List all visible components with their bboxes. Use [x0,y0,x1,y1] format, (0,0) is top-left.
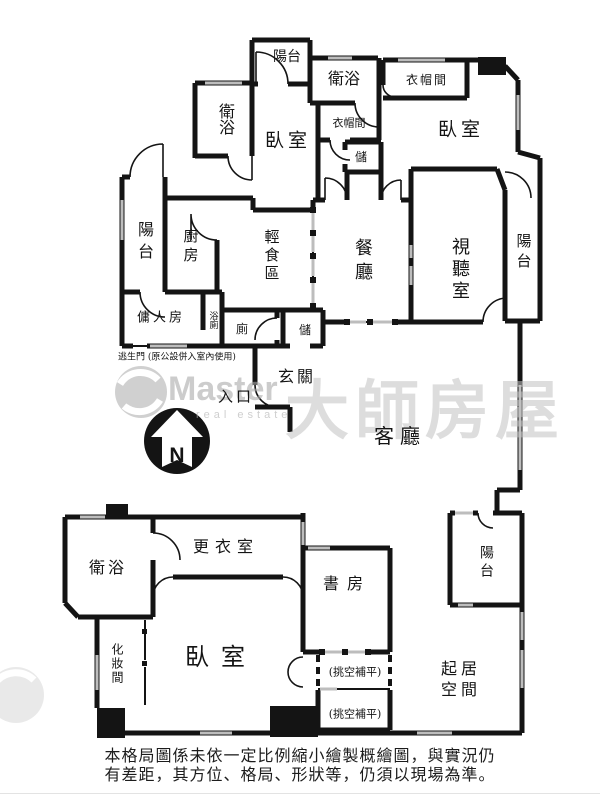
room-label-balcony-top: 陽台 [273,50,301,64]
room-label-bedroom-master: 臥室 [185,645,257,669]
room-label-toilet: 廁 [236,323,248,335]
room-label-balcony-left: 陽台 [136,221,152,265]
floor-plan-drawing: N [0,0,600,800]
room-label-foyer: 玄關 [278,369,316,385]
room-label-study: 書房 [323,576,371,592]
label-void-fill-lower: (挑空補平) [329,709,382,720]
room-label-sitting-area-line1: 起居 [441,661,481,677]
room-label-cloakroom-center: 衣帽間 [333,118,366,129]
floor-plan: N Master real estate 大師房屋 陽台 衛浴 衣帽間 衛浴 臥… [0,0,600,800]
north-label: N [169,444,184,467]
room-label-bedroom-top-left: 臥室 [265,132,311,151]
room-label-sitting-area-line2: 空間 [441,682,481,698]
room-label-light-meal-area: 輕食區 [264,229,279,283]
watermark-logo-remnant [0,667,44,723]
room-label-dining-room: 餐廳 [353,238,371,286]
room-label-makeup-room: 化妝間 [111,643,123,685]
room-label-bath-toilet: 浴廁 [208,311,217,329]
disclaimer-line2: 有差距，其方位、格局、形狀等，仍須以現場為準。 [0,765,600,784]
room-label-dressing-room: 更衣室 [193,539,259,555]
label-void-fill-upper: (挑空補平) [329,667,382,678]
room-label-bedroom-top-right: 臥室 [438,121,484,140]
room-label-bath-bottom-left: 衛浴 [89,560,127,576]
room-label-maid-room: 傭人房 [137,312,185,325]
room-label-bath-top-center: 衛浴 [328,71,360,87]
room-label-storage-top: 儲 [355,151,367,163]
escape-door-note: 逃生門 (原公設併入室內使用) [118,350,236,363]
disclaimer: 本格局圖係未依一定比例縮小繪製概繪圖，與實況仍 有差距，其方位、格局、形狀等，仍… [0,746,600,784]
room-label-kitchen: 廚房 [183,228,198,266]
disclaimer-line1: 本格局圖係未依一定比例縮小繪製概繪圖，與實況仍 [0,746,600,765]
room-label-entrance: 入口 [218,390,254,405]
north-compass: N [144,408,210,474]
room-label-living-room: 客廳 [374,426,426,446]
room-label-storage-mid: 儲 [299,324,311,336]
room-label-balcony-bottom-right: 陽台 [479,545,493,581]
room-label-cloakroom-top-right: 衣帽間 [406,74,448,86]
bottom-rule [0,793,600,794]
watermark-logo [115,366,167,418]
room-label-balcony-right: 陽台 [516,233,531,273]
room-label-bath-top-left: 衛浴 [217,103,233,135]
room-label-av-room: 視聽室 [450,237,468,303]
